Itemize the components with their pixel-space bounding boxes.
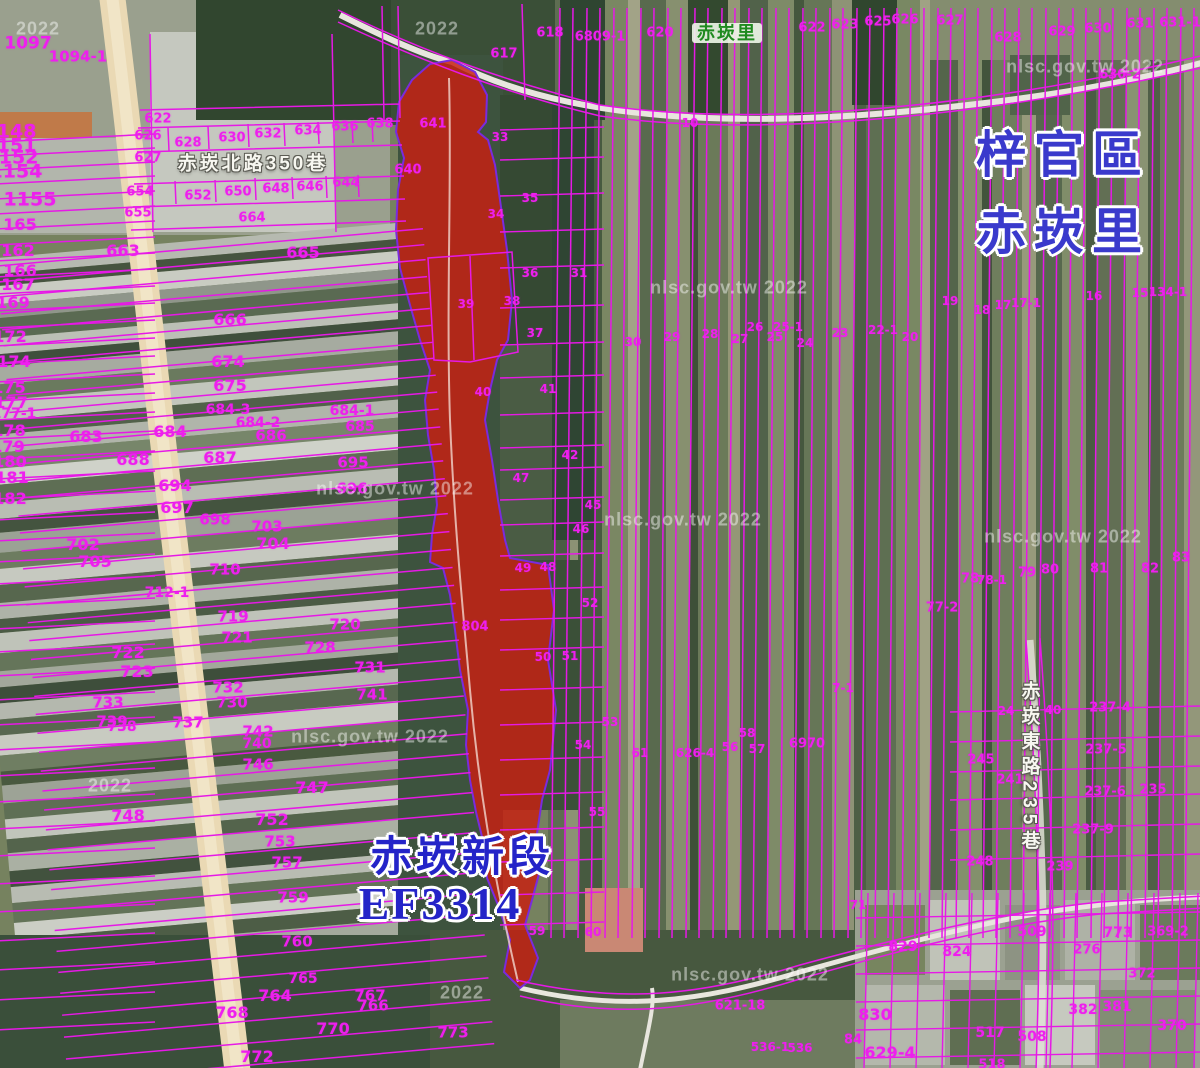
parcel-number: 82	[1141, 563, 1159, 576]
parcel-number: 79	[1018, 567, 1036, 580]
parcel-number: 664	[238, 212, 265, 225]
parcel-number: 38	[504, 295, 521, 307]
parcel-number: 49	[515, 562, 532, 574]
parcel-number: 381	[1102, 1000, 1131, 1014]
parcel-number: 634	[294, 125, 321, 138]
village-label: 赤崁里	[976, 207, 1150, 257]
parcel-number: 37	[527, 327, 544, 339]
parcel-number: 80	[1041, 564, 1059, 577]
parcel-number: 738	[107, 720, 136, 734]
parcel-number: 630	[1084, 23, 1111, 36]
parcel-number: 641	[419, 118, 446, 131]
parcel-number: 626	[134, 130, 161, 143]
parcel-number: 40	[1045, 704, 1062, 716]
parcel-number: 28	[702, 328, 719, 340]
parcel-number: 17-1	[1011, 297, 1041, 309]
parcel-number: 622	[144, 113, 171, 126]
parcel-number: 646	[296, 181, 323, 194]
parcel-number: 30	[625, 336, 642, 348]
parcel-number: 276	[1073, 944, 1100, 957]
parcel-number: 764	[258, 988, 291, 1004]
parcel-number: 765	[288, 972, 317, 986]
parcel-number: 239	[1046, 861, 1073, 874]
parcel-number: 71	[850, 899, 867, 911]
parcel-number: 665	[286, 245, 319, 261]
parcel-number: 752	[255, 812, 288, 828]
parcel-number: 172	[0, 329, 27, 345]
parcel-number: 245	[967, 754, 994, 767]
parcel-number: 674	[211, 354, 244, 370]
section-name-label: 赤崁新段	[370, 837, 554, 879]
district-label: 梓官區	[976, 130, 1150, 180]
parcel-number: 684	[153, 424, 186, 440]
parcel-number: 684-1	[330, 404, 375, 418]
parcel-number: 235	[1139, 784, 1166, 797]
parcel-number: 648	[262, 183, 289, 196]
parcel-number: 382	[1068, 1003, 1097, 1017]
parcel-number: 22-1	[868, 324, 898, 336]
parcel-number: 621-18	[715, 1000, 766, 1013]
parcel-number: 712-1	[145, 586, 190, 600]
parcel-number: 6970	[789, 738, 825, 751]
parcel-number: 60	[585, 926, 602, 938]
parcel-number: 517	[975, 1026, 1004, 1040]
parcel-number: 629-4	[864, 1045, 915, 1061]
parcel-number: 55	[589, 806, 606, 818]
parcel-number: 58	[739, 727, 756, 739]
parcel-number: 652	[184, 190, 211, 203]
parcel-number: 508	[1017, 1030, 1046, 1044]
parcel-number: 177-1	[0, 407, 36, 421]
parcel-number: 722	[111, 645, 144, 661]
map-canvas[interactable]: 10971094-1622626628630632634636638627654…	[0, 0, 1200, 1068]
parcel-number: 773	[437, 1026, 468, 1041]
parcel-number: 638	[366, 118, 393, 131]
parcel-number: 623	[831, 19, 858, 32]
parcel-number: 57	[749, 743, 766, 755]
section-code-label: EF3314	[359, 881, 522, 927]
parcel-number: 46	[573, 523, 590, 535]
parcel-number: 747	[295, 780, 328, 796]
parcel-number: 33	[492, 131, 509, 143]
parcel-number: 45	[585, 499, 602, 511]
parcel-number: 53	[602, 716, 619, 728]
parcel-number: 81	[1090, 563, 1108, 576]
parcel-number: 625	[864, 16, 891, 29]
watermark: nlsc.gov.tw 2022	[316, 479, 474, 500]
parcel-number: 666	[213, 312, 246, 328]
parcel-number: 35	[522, 192, 539, 204]
parcel-number: 41	[540, 383, 557, 395]
parcel-number: 636	[331, 121, 358, 134]
parcel-number: 694	[158, 478, 191, 494]
parcel-number: 728	[304, 641, 335, 656]
parcel-number: 59	[529, 925, 546, 937]
parcel-number: 169	[0, 295, 30, 311]
parcel-number: 632	[254, 128, 281, 141]
parcel-number: 766	[357, 999, 388, 1014]
parcel-number: 733	[92, 696, 123, 711]
watermark: nlsc.gov.tw 2022	[650, 278, 808, 299]
parcel-number: 27	[732, 333, 749, 345]
parcel-number: 509	[1017, 925, 1046, 939]
parcel-number: 740	[242, 737, 271, 751]
parcel-number: 182	[0, 491, 27, 507]
parcel-number: 56	[722, 741, 739, 753]
parcel-number: 48	[540, 561, 557, 573]
parcel-number: 830	[858, 1007, 891, 1023]
parcel-number: 748	[111, 808, 144, 824]
parcel-number: 47	[513, 472, 530, 484]
village-badge: 赤崁里	[692, 23, 762, 43]
parcel-number: 628	[994, 32, 1021, 45]
parcel-number: 622	[798, 22, 825, 35]
parcel-number: 24	[797, 337, 814, 349]
parcel-number: 237-5	[1085, 744, 1127, 757]
parcel-number: 698	[199, 513, 230, 528]
parcel-number: 697	[160, 500, 193, 516]
parcel-number: 686	[255, 429, 286, 444]
parcel-number: 369-2	[1147, 926, 1189, 939]
parcel-number: 710	[209, 563, 240, 578]
parcel-number: 640	[394, 164, 421, 177]
parcel-number: 536-1	[751, 1041, 789, 1053]
parcel-number: 741	[356, 688, 387, 703]
parcel-number: 687	[203, 450, 236, 466]
parcel-number: 695	[337, 456, 368, 471]
parcel-number: 685	[345, 420, 374, 434]
watermark: nlsc.gov.tw 2022	[984, 527, 1142, 548]
parcel-number: 720	[329, 618, 360, 633]
road-label-east: 赤崁東路235巷	[1020, 681, 1039, 856]
parcel-number: 54	[575, 739, 592, 751]
parcel-number: 760	[281, 935, 312, 950]
parcel-number: 52	[582, 597, 599, 609]
parcel-number: 36	[522, 267, 539, 279]
parcel-number: 737	[172, 716, 203, 731]
parcel-number: 721	[221, 631, 252, 646]
parcel-number: 18	[974, 304, 991, 316]
parcel-number: 629	[1048, 26, 1075, 39]
parcel-number: 162	[1, 243, 34, 259]
parcel-number: 705	[78, 554, 111, 570]
parcel-number: 627	[936, 15, 963, 28]
parcel-number: 237-9	[1072, 824, 1114, 837]
parcel-number: 1155	[4, 191, 57, 210]
parcel-number: 644	[332, 177, 359, 190]
parcel-number: 773	[1103, 926, 1132, 940]
parcel-number: 25	[767, 331, 784, 343]
watermark: nlsc.gov.tw 2022	[671, 965, 829, 986]
parcel-number: 61	[632, 747, 649, 759]
parcel-number: 167	[1, 277, 34, 293]
parcel-number: 370	[1157, 1019, 1186, 1033]
parcel-number: 663	[106, 243, 139, 259]
parcel-number: 42	[562, 449, 579, 461]
watermark: 2022	[16, 19, 60, 40]
parcel-number: 165	[3, 217, 36, 233]
parcel-number: 730	[216, 696, 247, 711]
parcel-number: 759	[277, 891, 308, 906]
parcel-number: 655	[124, 207, 151, 220]
parcel-number: 29	[664, 331, 681, 343]
parcel-number: 7-1	[832, 682, 854, 694]
parcel-number: 24	[998, 705, 1015, 717]
parcel-number: 772	[240, 1049, 273, 1065]
parcel-number: 620	[646, 27, 673, 40]
parcel-number: 617	[490, 48, 517, 61]
watermark: nlsc.gov.tw 2022	[604, 510, 762, 531]
parcel-number: 753	[264, 835, 295, 850]
parcel-number: 719	[217, 610, 248, 625]
parcel-number: 757	[271, 856, 302, 871]
watermark: 2022	[440, 983, 484, 1004]
parcel-number: 829	[888, 940, 917, 954]
parcel-number: 770	[316, 1021, 349, 1037]
parcel-number: 134-1	[1149, 286, 1187, 298]
parcel-number: 17	[995, 299, 1012, 311]
parcel-number: 1154	[0, 163, 42, 182]
parcel-number: 78-1	[977, 574, 1007, 586]
watermark: nlsc.gov.tw 2022	[291, 727, 449, 748]
road-label-north: 赤崁北路350巷	[178, 155, 329, 174]
parcel-number: 768	[215, 1005, 248, 1021]
parcel-number: 518	[978, 1059, 1005, 1068]
parcel-number: 237-4	[1089, 702, 1131, 715]
parcel-number: 703	[251, 520, 282, 535]
parcel-number: 626	[891, 14, 918, 27]
parcel-number: 746	[242, 758, 273, 773]
parcel-number: 181	[0, 470, 29, 486]
parcel-number: 618	[536, 27, 563, 40]
parcel-number: 628	[174, 137, 201, 150]
parcel-number: 40	[475, 386, 492, 398]
parcel-number: 10	[682, 117, 699, 129]
parcel-number: 654	[126, 186, 153, 199]
parcel-number: 536	[787, 1042, 812, 1054]
parcel-number: 804	[461, 621, 488, 634]
parcel-number: 248	[966, 856, 993, 869]
parcel-number: 650	[224, 186, 251, 199]
parcel-number: 704	[256, 536, 289, 552]
parcel-number: 20	[902, 331, 919, 343]
parcel-number: 675	[213, 378, 246, 394]
watermark: nlsc.gov.tw 2022	[1006, 57, 1164, 78]
parcel-number: 723	[120, 664, 153, 680]
parcel-number: 51	[562, 650, 579, 662]
parcel-number: 631	[1126, 18, 1153, 31]
parcel-number: 19	[942, 295, 959, 307]
parcel-number: 372	[1128, 968, 1155, 981]
parcel-number: 1094-1	[49, 50, 107, 65]
parcel-number: 702	[66, 537, 99, 553]
parcel-number: 688	[116, 452, 149, 468]
parcel-number: 174	[0, 354, 31, 370]
parcel-number: 627	[134, 152, 161, 165]
parcel-number: 683	[69, 429, 102, 445]
parcel-number: 824	[942, 945, 971, 959]
parcel-number: 631-1	[1159, 17, 1200, 30]
parcel-number: 50	[535, 651, 552, 663]
parcel-number: 39	[458, 298, 475, 310]
parcel-number: 31	[571, 267, 588, 279]
parcel-number: 23	[832, 327, 849, 339]
parcel-number: 84	[844, 1034, 862, 1047]
watermark: 2022	[415, 19, 459, 40]
parcel-number: 34	[488, 208, 505, 220]
parcel-number: 630	[218, 132, 245, 145]
parcel-number: 626-4	[676, 747, 714, 759]
parcel-number: 16	[1086, 290, 1103, 302]
parcel-number: 83	[1172, 552, 1190, 565]
parcel-number: 237-6	[1084, 786, 1126, 799]
parcel-number: 6809-1	[575, 31, 626, 44]
watermark: 2022	[88, 776, 132, 797]
parcel-number: 731	[354, 661, 385, 676]
parcel-number: 77-2	[926, 602, 959, 615]
parcel-number: 26	[747, 321, 764, 333]
parcel-number: 15	[1132, 287, 1149, 299]
